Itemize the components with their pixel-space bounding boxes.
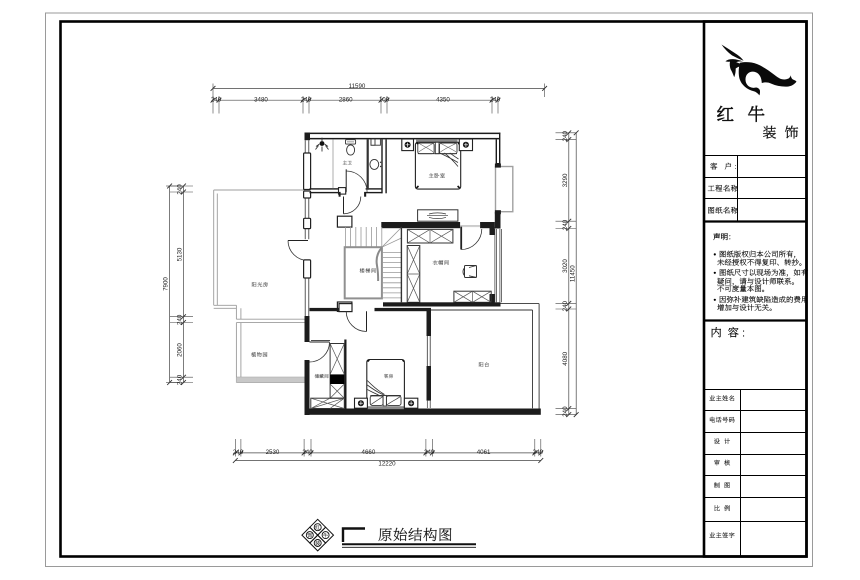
svg-text:4080: 4080 (562, 351, 569, 365)
svg-text:2060: 2060 (177, 343, 184, 357)
svg-text:4350: 4350 (436, 96, 450, 103)
svg-text:3480: 3480 (254, 96, 268, 103)
svg-text:240: 240 (490, 96, 501, 103)
svg-text::: : (735, 206, 737, 215)
svg-text:249: 249 (424, 449, 435, 456)
svg-text:240: 240 (562, 130, 569, 141)
svg-text:12220: 12220 (378, 460, 396, 467)
svg-text:3020: 3020 (562, 259, 569, 273)
svg-text::: : (735, 184, 737, 193)
svg-text:240: 240 (177, 184, 184, 195)
svg-text:240: 240 (562, 406, 569, 417)
svg-text:240: 240 (177, 374, 184, 385)
svg-text:240: 240 (233, 449, 244, 456)
svg-text:3290: 3290 (562, 173, 569, 187)
svg-text:5130: 5130 (177, 247, 184, 261)
svg-text:240: 240 (533, 449, 544, 456)
svg-text:240: 240 (177, 314, 184, 325)
svg-text:4061: 4061 (477, 449, 491, 456)
svg-text::: : (734, 162, 736, 171)
svg-text:240: 240 (302, 449, 313, 456)
svg-text:11590: 11590 (349, 83, 366, 90)
svg-text:100: 100 (379, 96, 390, 103)
svg-text::: : (742, 328, 745, 340)
svg-text:240: 240 (301, 96, 312, 103)
svg-text:2530: 2530 (266, 449, 280, 456)
svg-text:7900: 7900 (163, 277, 170, 291)
svg-text:2860: 2860 (339, 96, 353, 103)
svg-text:240: 240 (211, 96, 222, 103)
svg-text:240: 240 (562, 219, 569, 230)
svg-text:11450: 11450 (569, 265, 576, 282)
svg-text:4660: 4660 (362, 449, 376, 456)
svg-text:240: 240 (562, 300, 569, 311)
